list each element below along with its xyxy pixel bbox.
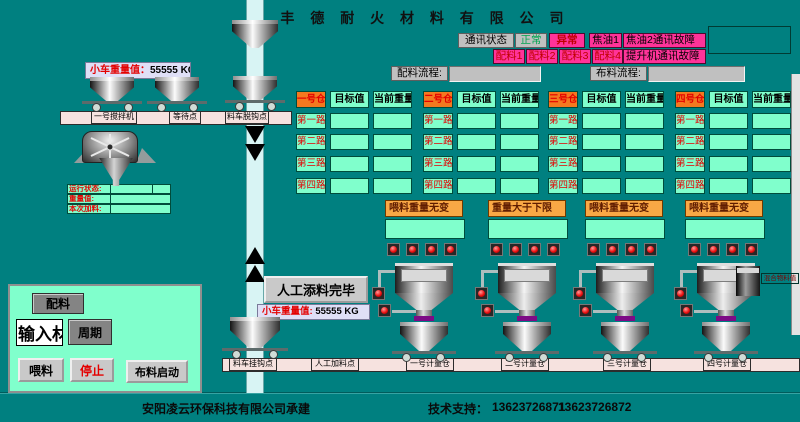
indicator-light-icon xyxy=(573,287,586,300)
tar1-tag: 焦油1 xyxy=(589,33,622,48)
indicator-light-icon xyxy=(644,243,657,256)
bin2-route3-target xyxy=(457,156,496,172)
bin4-route3-target xyxy=(709,156,748,172)
bin4-route2-label: 第二路 xyxy=(675,134,705,150)
wheel-icon xyxy=(402,353,411,362)
bin3-current-header: 当前重量 xyxy=(625,91,664,108)
indicator-light-icon xyxy=(444,243,457,256)
wheel-icon xyxy=(269,350,278,359)
current-feed-field xyxy=(110,204,171,214)
hopper-window xyxy=(504,269,550,282)
valve-icon xyxy=(414,316,434,321)
page-title: 聚 丰 德 耐 火 材 料 有 限 公 司 xyxy=(250,8,570,28)
footer-phone-1: 13623726871 xyxy=(492,400,565,414)
hopper-icon xyxy=(232,20,278,48)
bin1-route2-current xyxy=(373,134,412,150)
bin4-route4-current xyxy=(752,178,791,194)
bin4-route1-label: 第一路 xyxy=(675,113,705,129)
bin4-route1-current xyxy=(752,113,791,129)
batch-flow-label: 配料流程: xyxy=(391,66,448,81)
cart-weight-value: 55555 KG xyxy=(315,306,358,317)
hopper-icon xyxy=(233,76,277,102)
bin4-alert-value xyxy=(685,219,765,239)
status-frame xyxy=(708,26,791,54)
bin2-current-header: 当前重量 xyxy=(500,91,539,108)
dist-flow-label: 布料流程: xyxy=(590,66,647,81)
wheel-icon xyxy=(157,103,166,112)
elevator-bottom-hopper xyxy=(222,317,288,363)
mixer-cone xyxy=(96,158,136,186)
bin3-route2-label: 第二路 xyxy=(548,134,578,150)
bin4-route3-current xyxy=(752,156,791,172)
cart-unhook-position xyxy=(223,76,287,116)
comm-status-label: 通讯状态 xyxy=(458,33,514,48)
bin2-route1-current xyxy=(500,113,539,129)
cart-wait-position xyxy=(145,77,209,117)
hopper-icon xyxy=(503,322,551,352)
bin2-route2-label: 第二路 xyxy=(423,134,453,150)
bin1-alert: 喂料重量无变 xyxy=(385,200,463,217)
wheel-icon xyxy=(704,353,713,362)
bin3-route3-label: 第三路 xyxy=(548,156,578,172)
wheel-icon xyxy=(124,103,133,112)
bin4-route3-label: 第三路 xyxy=(675,156,705,172)
bin4-route1-target xyxy=(709,113,748,129)
arrow-up-icon xyxy=(245,265,265,282)
hopper-icon xyxy=(90,77,134,103)
axle xyxy=(495,351,559,354)
bin1-route4-target xyxy=(330,178,369,194)
batch4-tag: 配料4 xyxy=(592,49,623,64)
wheel-icon xyxy=(505,353,514,362)
axle xyxy=(392,351,456,354)
bin4-route4-target xyxy=(709,178,748,194)
stop-button[interactable]: 停止 xyxy=(70,358,114,382)
indicator-light-icon xyxy=(372,287,385,300)
comm-normal-indicator: 正常 xyxy=(515,33,547,48)
bin2-route4-target xyxy=(457,178,496,194)
bin1-route3-target xyxy=(330,156,369,172)
bin1-current-header: 当前重量 xyxy=(373,91,412,108)
pipe xyxy=(392,310,418,313)
indicator-light-icon xyxy=(528,243,541,256)
wheel-icon xyxy=(637,353,646,362)
bin1-alert-value xyxy=(385,219,465,239)
indicator-light-icon xyxy=(547,243,560,256)
bin3-route4-current xyxy=(625,178,664,194)
wheel-icon xyxy=(232,350,241,359)
bin1-target-header: 目标值 xyxy=(330,91,369,108)
bin1-route3-label: 第三路 xyxy=(296,156,326,172)
weight-value-field xyxy=(110,194,171,204)
arrow-down-icon xyxy=(245,144,265,161)
footer-support-label: 技术支持： xyxy=(428,400,488,417)
indicator-light-icon xyxy=(406,243,419,256)
axle xyxy=(222,348,288,351)
bin3-alert-value xyxy=(585,219,665,239)
feed-button[interactable]: 喂料 xyxy=(18,358,64,382)
bin3-route2-target xyxy=(582,134,621,150)
hopper-icon xyxy=(230,317,280,350)
footer-company: 安阳凌云环保科技有限公司承建 xyxy=(142,400,310,417)
hoist-fault-message: 提升机通讯故障 xyxy=(623,49,706,64)
rail-label-manual-feed-point: 人工加料点 xyxy=(311,358,359,371)
wheel-icon xyxy=(92,103,101,112)
bin3-alert: 喂料重量无变 xyxy=(585,200,663,217)
comm-abnormal-indicator: 异常 xyxy=(549,33,585,48)
axle xyxy=(593,351,657,354)
indicator-light-icon xyxy=(475,287,488,300)
bin1-route1-label: 第一路 xyxy=(296,113,326,129)
arrow-up-icon xyxy=(245,247,265,264)
pipe xyxy=(495,310,521,313)
bin4-route4-label: 第四路 xyxy=(675,178,705,194)
hopper-window xyxy=(401,269,447,282)
indicator-light-icon xyxy=(579,304,592,317)
indicator-light-icon xyxy=(688,243,701,256)
bin2-route1-target xyxy=(457,113,496,129)
current-feed-label: 本次加料: xyxy=(67,204,111,214)
bin3-route1-target xyxy=(582,113,621,129)
bin1-route1-current xyxy=(373,113,412,129)
dist-start-button[interactable]: 布料启动 xyxy=(126,360,188,383)
metering-bin-1 xyxy=(364,260,484,366)
weight-value-label: 重量值: xyxy=(67,194,111,204)
cart-weight-label: 小车重量值: xyxy=(262,306,313,317)
wheel-icon xyxy=(189,103,198,112)
bin4-target-header: 目标值 xyxy=(709,91,748,108)
material-input[interactable] xyxy=(16,319,63,346)
bin3-route4-target xyxy=(582,178,621,194)
bin4-route2-current xyxy=(752,134,791,150)
batch1-tag: 配料1 xyxy=(493,49,525,64)
bin2-route3-label: 第三路 xyxy=(423,156,453,172)
bin3-route2-current xyxy=(625,134,664,150)
axle xyxy=(147,101,207,104)
bin1-route2-target xyxy=(330,134,369,150)
wheel-icon xyxy=(539,353,548,362)
mix-material-label: 混合物料值 xyxy=(761,273,799,284)
bin2-route4-label: 第四路 xyxy=(423,178,453,194)
hopper-icon xyxy=(601,322,649,352)
bin2-route2-target xyxy=(457,134,496,150)
indicator-light-icon xyxy=(625,243,638,256)
hopper-window xyxy=(602,269,648,282)
wheel-icon xyxy=(603,353,612,362)
bin2-route3-current xyxy=(500,156,539,172)
cart-mixer-position xyxy=(80,77,144,117)
pipe xyxy=(593,310,619,313)
hopper-icon xyxy=(155,77,199,103)
funnel-icon xyxy=(395,293,453,310)
indicator-light-icon xyxy=(707,243,720,256)
bin3-route4-label: 第四路 xyxy=(548,178,578,194)
bin4-current-header: 当前重量 xyxy=(752,91,791,108)
wheel-icon xyxy=(436,353,445,362)
dist-flow-value xyxy=(648,66,745,82)
valve-icon xyxy=(716,316,736,321)
bin3-route3-current xyxy=(625,156,664,172)
axle xyxy=(82,101,142,104)
batch-flow-value xyxy=(449,66,541,82)
bin4-alert: 喂料重量无变 xyxy=(685,200,763,217)
batch3-tag: 配料3 xyxy=(559,49,591,64)
hmi-screen: 聚 丰 德 耐 火 材 料 有 限 公 司 通讯状态 正常 异常 焦油1 焦油2… xyxy=(0,0,800,422)
bin4-name: 四号仓 xyxy=(675,91,705,108)
bin3-route1-label: 第一路 xyxy=(548,113,578,129)
control-panel: 配料 周期 喂料 停止 布料启动 xyxy=(8,284,202,393)
cycle-button[interactable]: 周期 xyxy=(68,319,112,345)
valve-icon xyxy=(615,316,635,321)
batch2-tag: 配料2 xyxy=(526,49,558,64)
bin1-route4-current xyxy=(373,178,412,194)
valve-icon xyxy=(517,316,537,321)
mixer-leg xyxy=(136,148,156,163)
wheel-icon xyxy=(738,353,747,362)
bin2-route4-current xyxy=(500,178,539,194)
bin4-route2-target xyxy=(709,134,748,150)
bin2-target-header: 目标值 xyxy=(457,91,496,108)
arrow-down-icon xyxy=(245,126,265,143)
bin2-alert: 重量大于下限 xyxy=(488,200,566,217)
bin2-route2-current xyxy=(500,134,539,150)
hopper-icon xyxy=(702,322,750,352)
funnel-icon xyxy=(498,293,556,310)
indicator-light-icon xyxy=(606,243,619,256)
wheel-icon xyxy=(267,102,276,111)
indicator-light-icon xyxy=(726,243,739,256)
indicator-light-icon xyxy=(509,243,522,256)
indicator-light-icon xyxy=(425,243,438,256)
tank-icon xyxy=(736,266,760,296)
indicator-light-icon xyxy=(680,304,693,317)
bin2-name: 二号仓 xyxy=(423,91,453,108)
indicator-light-icon xyxy=(490,243,503,256)
pipe xyxy=(694,310,720,313)
indicator-light-icon xyxy=(378,304,391,317)
cart-weight-value: 55555 KG xyxy=(150,65,191,76)
funnel-icon xyxy=(596,293,654,310)
bin1-route3-current xyxy=(373,156,412,172)
indicator-light-icon xyxy=(674,287,687,300)
bin3-route1-current xyxy=(625,113,664,129)
tar2-fault-message: 焦油2通讯故障 xyxy=(623,33,706,48)
bin3-name: 三号仓 xyxy=(548,91,578,108)
manual-feed-done-button[interactable]: 人工添料完毕 xyxy=(264,276,368,303)
right-edge-column xyxy=(791,74,800,335)
wheel-icon xyxy=(235,102,244,111)
bin3-route3-target xyxy=(582,156,621,172)
indicator-light-icon xyxy=(387,243,400,256)
hopper-icon xyxy=(400,322,448,352)
bin1-name: 一号仓 xyxy=(296,91,326,108)
batch-button[interactable]: 配料 xyxy=(32,293,84,314)
indicator-light-icon xyxy=(745,243,758,256)
indicator-light-icon xyxy=(481,304,494,317)
bin3-target-header: 目标值 xyxy=(582,91,621,108)
bin1-route4-label: 第四路 xyxy=(296,178,326,194)
cart-weight-label: 小车重量值： xyxy=(90,65,150,76)
axle xyxy=(225,100,285,103)
bin2-route1-label: 第一路 xyxy=(423,113,453,129)
bin2-alert-value xyxy=(488,219,568,239)
bin1-route1-target xyxy=(330,113,369,129)
footer-phone-2: 13623726872 xyxy=(558,400,631,414)
bin1-route2-label: 第二路 xyxy=(296,134,326,150)
indicator-light-icon xyxy=(587,243,600,256)
axle xyxy=(694,351,758,354)
mixer-icon xyxy=(74,130,168,188)
